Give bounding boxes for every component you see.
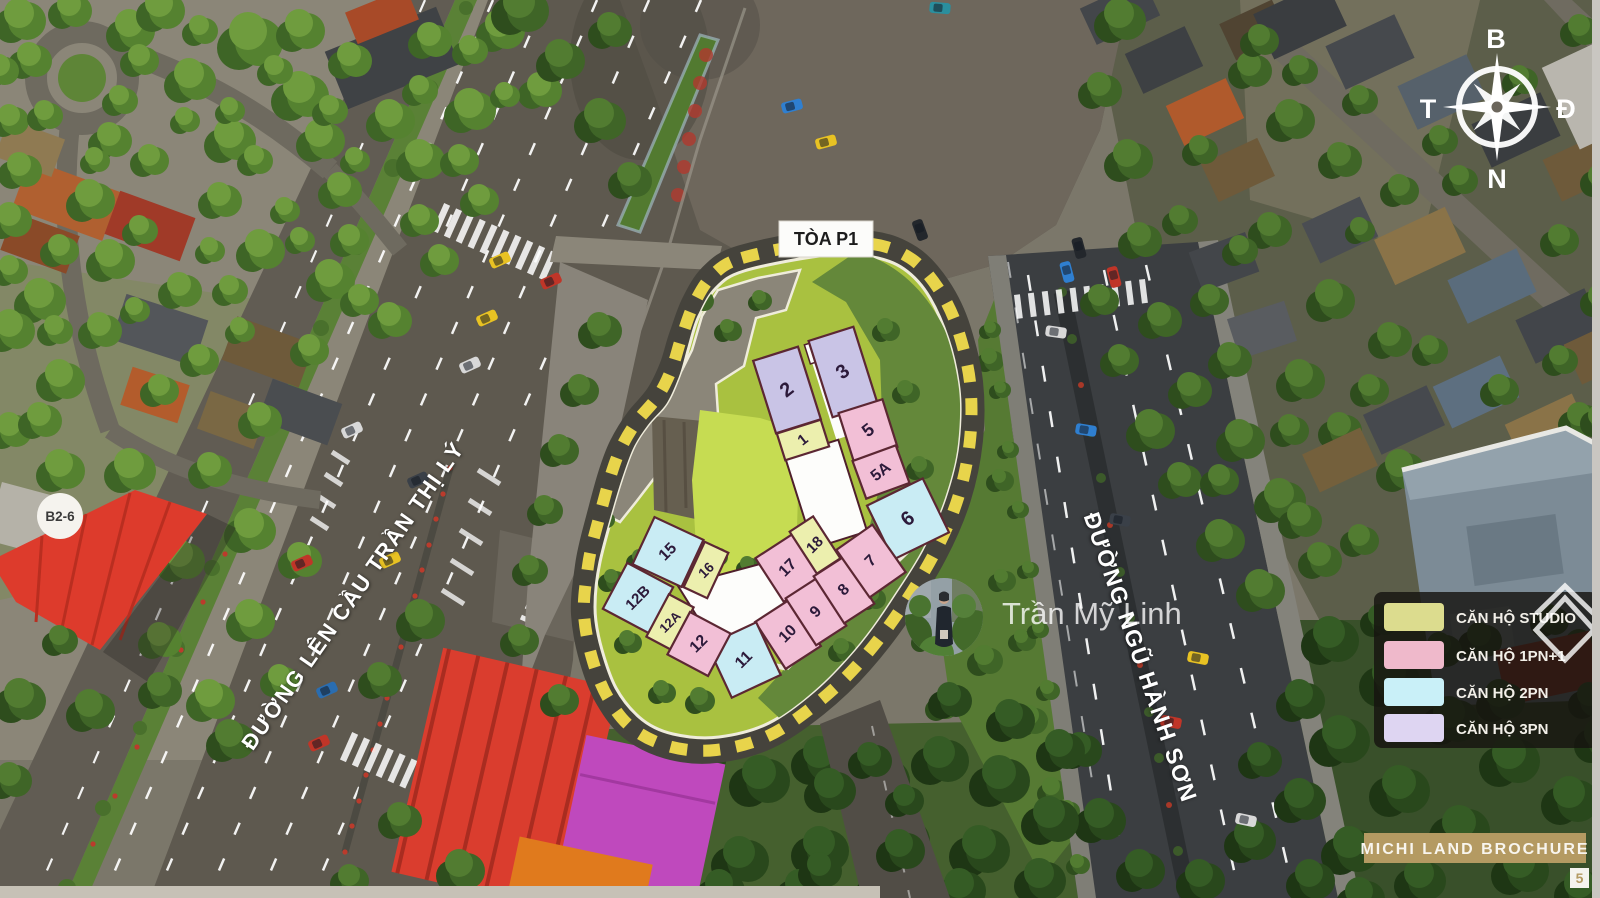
svg-text:B2-6: B2-6 xyxy=(45,509,75,524)
svg-text:TÒA P1: TÒA P1 xyxy=(794,228,858,249)
svg-text:CĂN HỘ 2PN: CĂN HỘ 2PN xyxy=(1456,684,1549,702)
svg-text:Đ: Đ xyxy=(1556,94,1576,124)
svg-text:5: 5 xyxy=(1576,870,1584,886)
svg-text:T: T xyxy=(1420,94,1437,124)
svg-text:CĂN HỘ STUDIO: CĂN HỘ STUDIO xyxy=(1456,609,1576,627)
svg-text:N: N xyxy=(1487,164,1507,194)
svg-text:MICHI LAND BROCHURE: MICHI LAND BROCHURE xyxy=(1360,841,1589,858)
svg-text:CĂN HỘ 3PN: CĂN HỘ 3PN xyxy=(1456,720,1549,738)
svg-text:Trần Mỹ Linh: Trần Mỹ Linh xyxy=(1002,596,1182,631)
svg-text:CĂN HỘ 1PN+1: CĂN HỘ 1PN+1 xyxy=(1456,647,1566,665)
svg-text:B: B xyxy=(1486,24,1506,54)
